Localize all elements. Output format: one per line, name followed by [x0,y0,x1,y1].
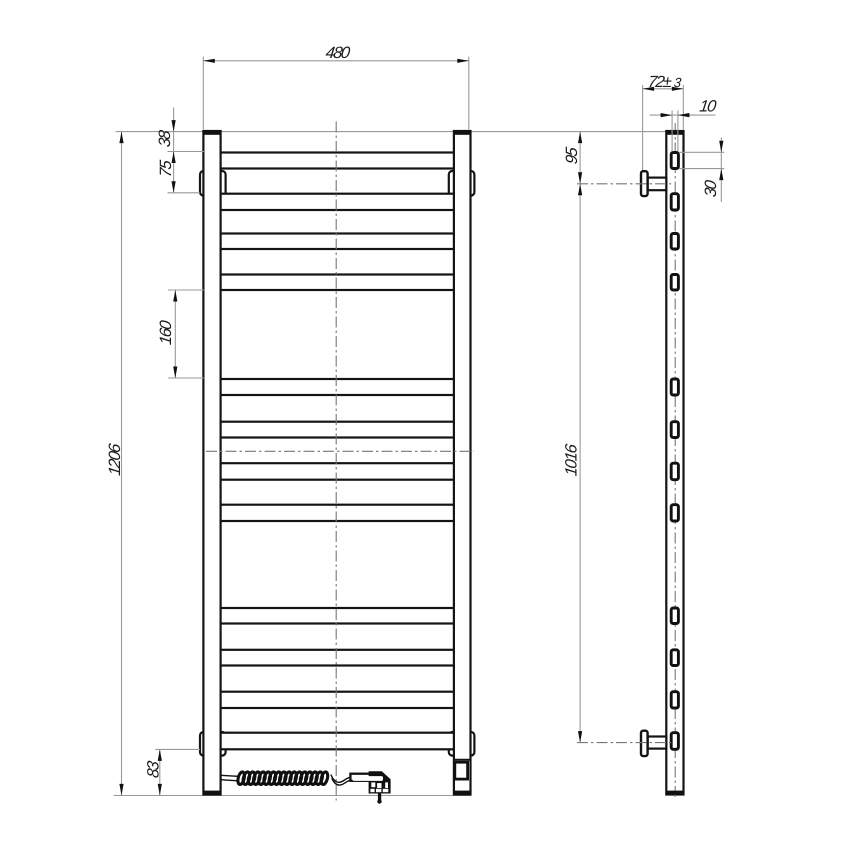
svg-text:72±: 72± [647,73,673,91]
svg-text:1206: 1206 [106,442,124,477]
svg-text:1016: 1016 [563,442,581,477]
